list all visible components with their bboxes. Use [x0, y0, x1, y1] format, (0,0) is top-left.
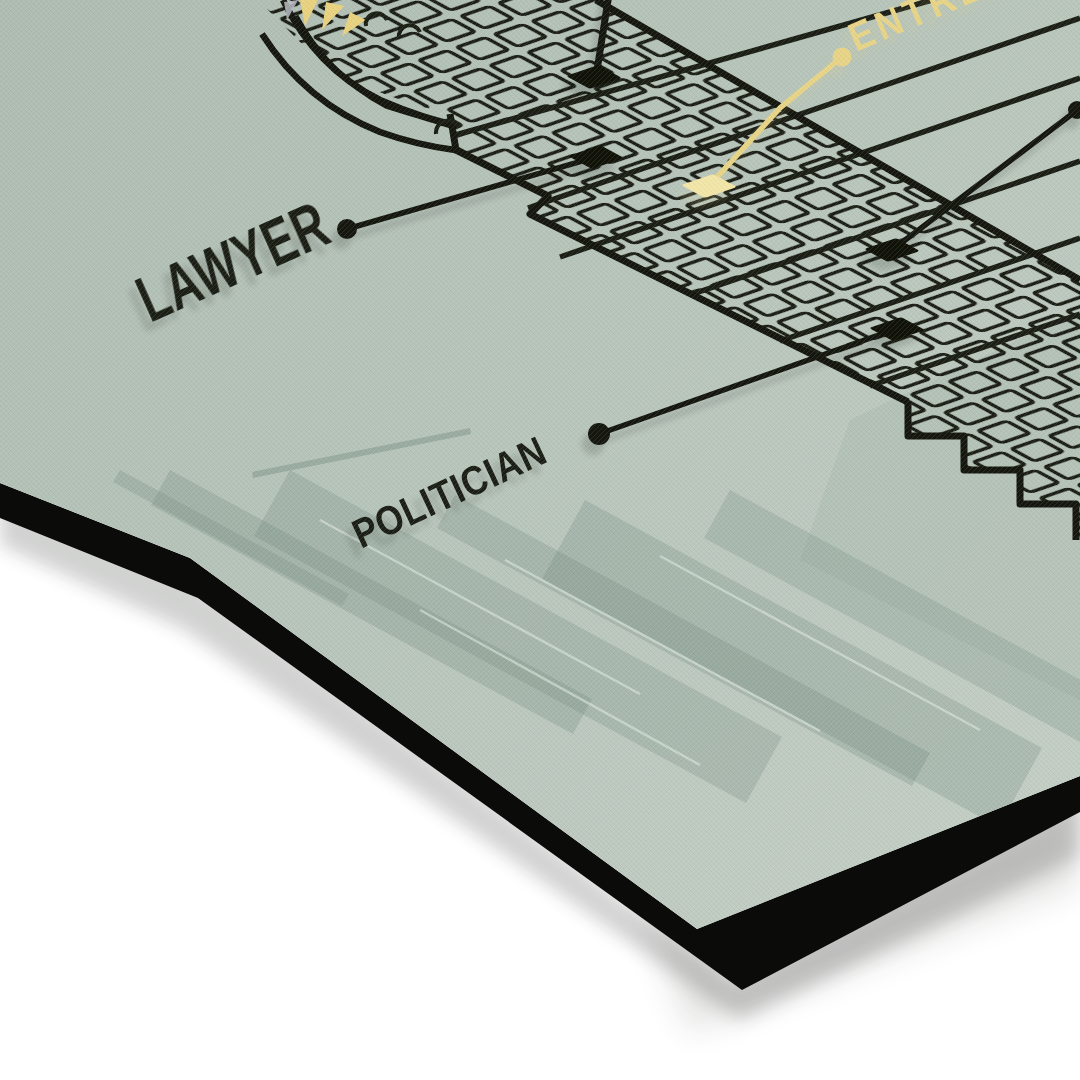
- product-photo: LAWYER POLITICIAN ENTREPRENEUR: [0, 0, 1080, 1080]
